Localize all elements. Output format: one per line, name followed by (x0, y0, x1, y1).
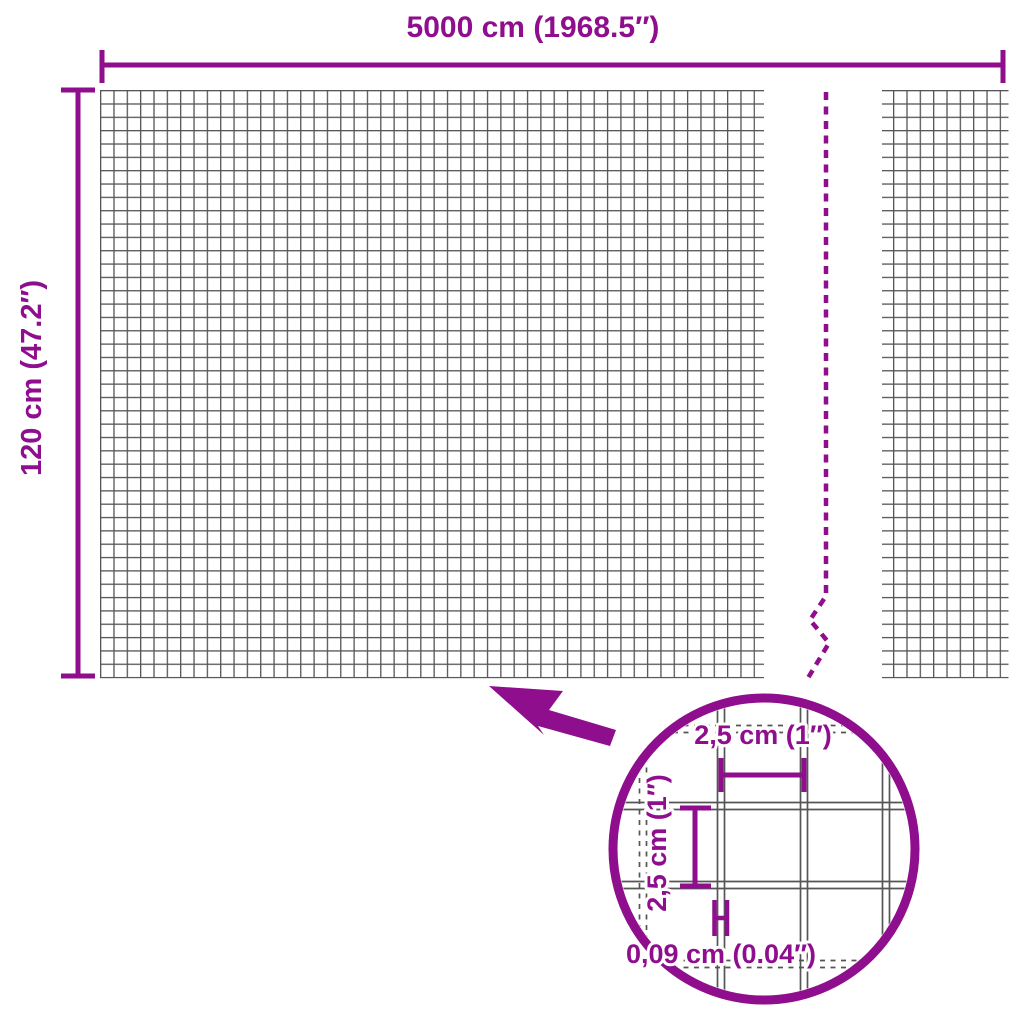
cell-width-label: 2,5 cm (1″) (694, 720, 832, 750)
diagram-canvas: 5000 cm (1968.5″) 120 cm (47.2″) 2,5 cm … (0, 0, 1024, 1024)
mesh-panel-main (100, 90, 764, 678)
break-line (808, 92, 829, 678)
width-dimension: 5000 cm (1968.5″) (102, 11, 1003, 83)
height-dimension: 120 cm (47.2″) (16, 90, 95, 676)
product-dimension-diagram: 5000 cm (1968.5″) 120 cm (47.2″) 2,5 cm … (0, 0, 1024, 1024)
cell-height-label: 2,5 cm (1″) (642, 774, 672, 912)
height-dimension-label: 120 cm (47.2″) (16, 280, 48, 476)
mesh-panel-right (882, 90, 1009, 678)
zoom-arrow-icon (489, 686, 616, 746)
wire-thickness-label: 0,09 cm (0.04″) (626, 939, 816, 969)
detail-view: 2,5 cm (1″) 2,5 cm (1″) 0,09 cm (0.04″) (610, 694, 920, 1004)
width-dimension-label: 5000 cm (1968.5″) (407, 11, 660, 44)
